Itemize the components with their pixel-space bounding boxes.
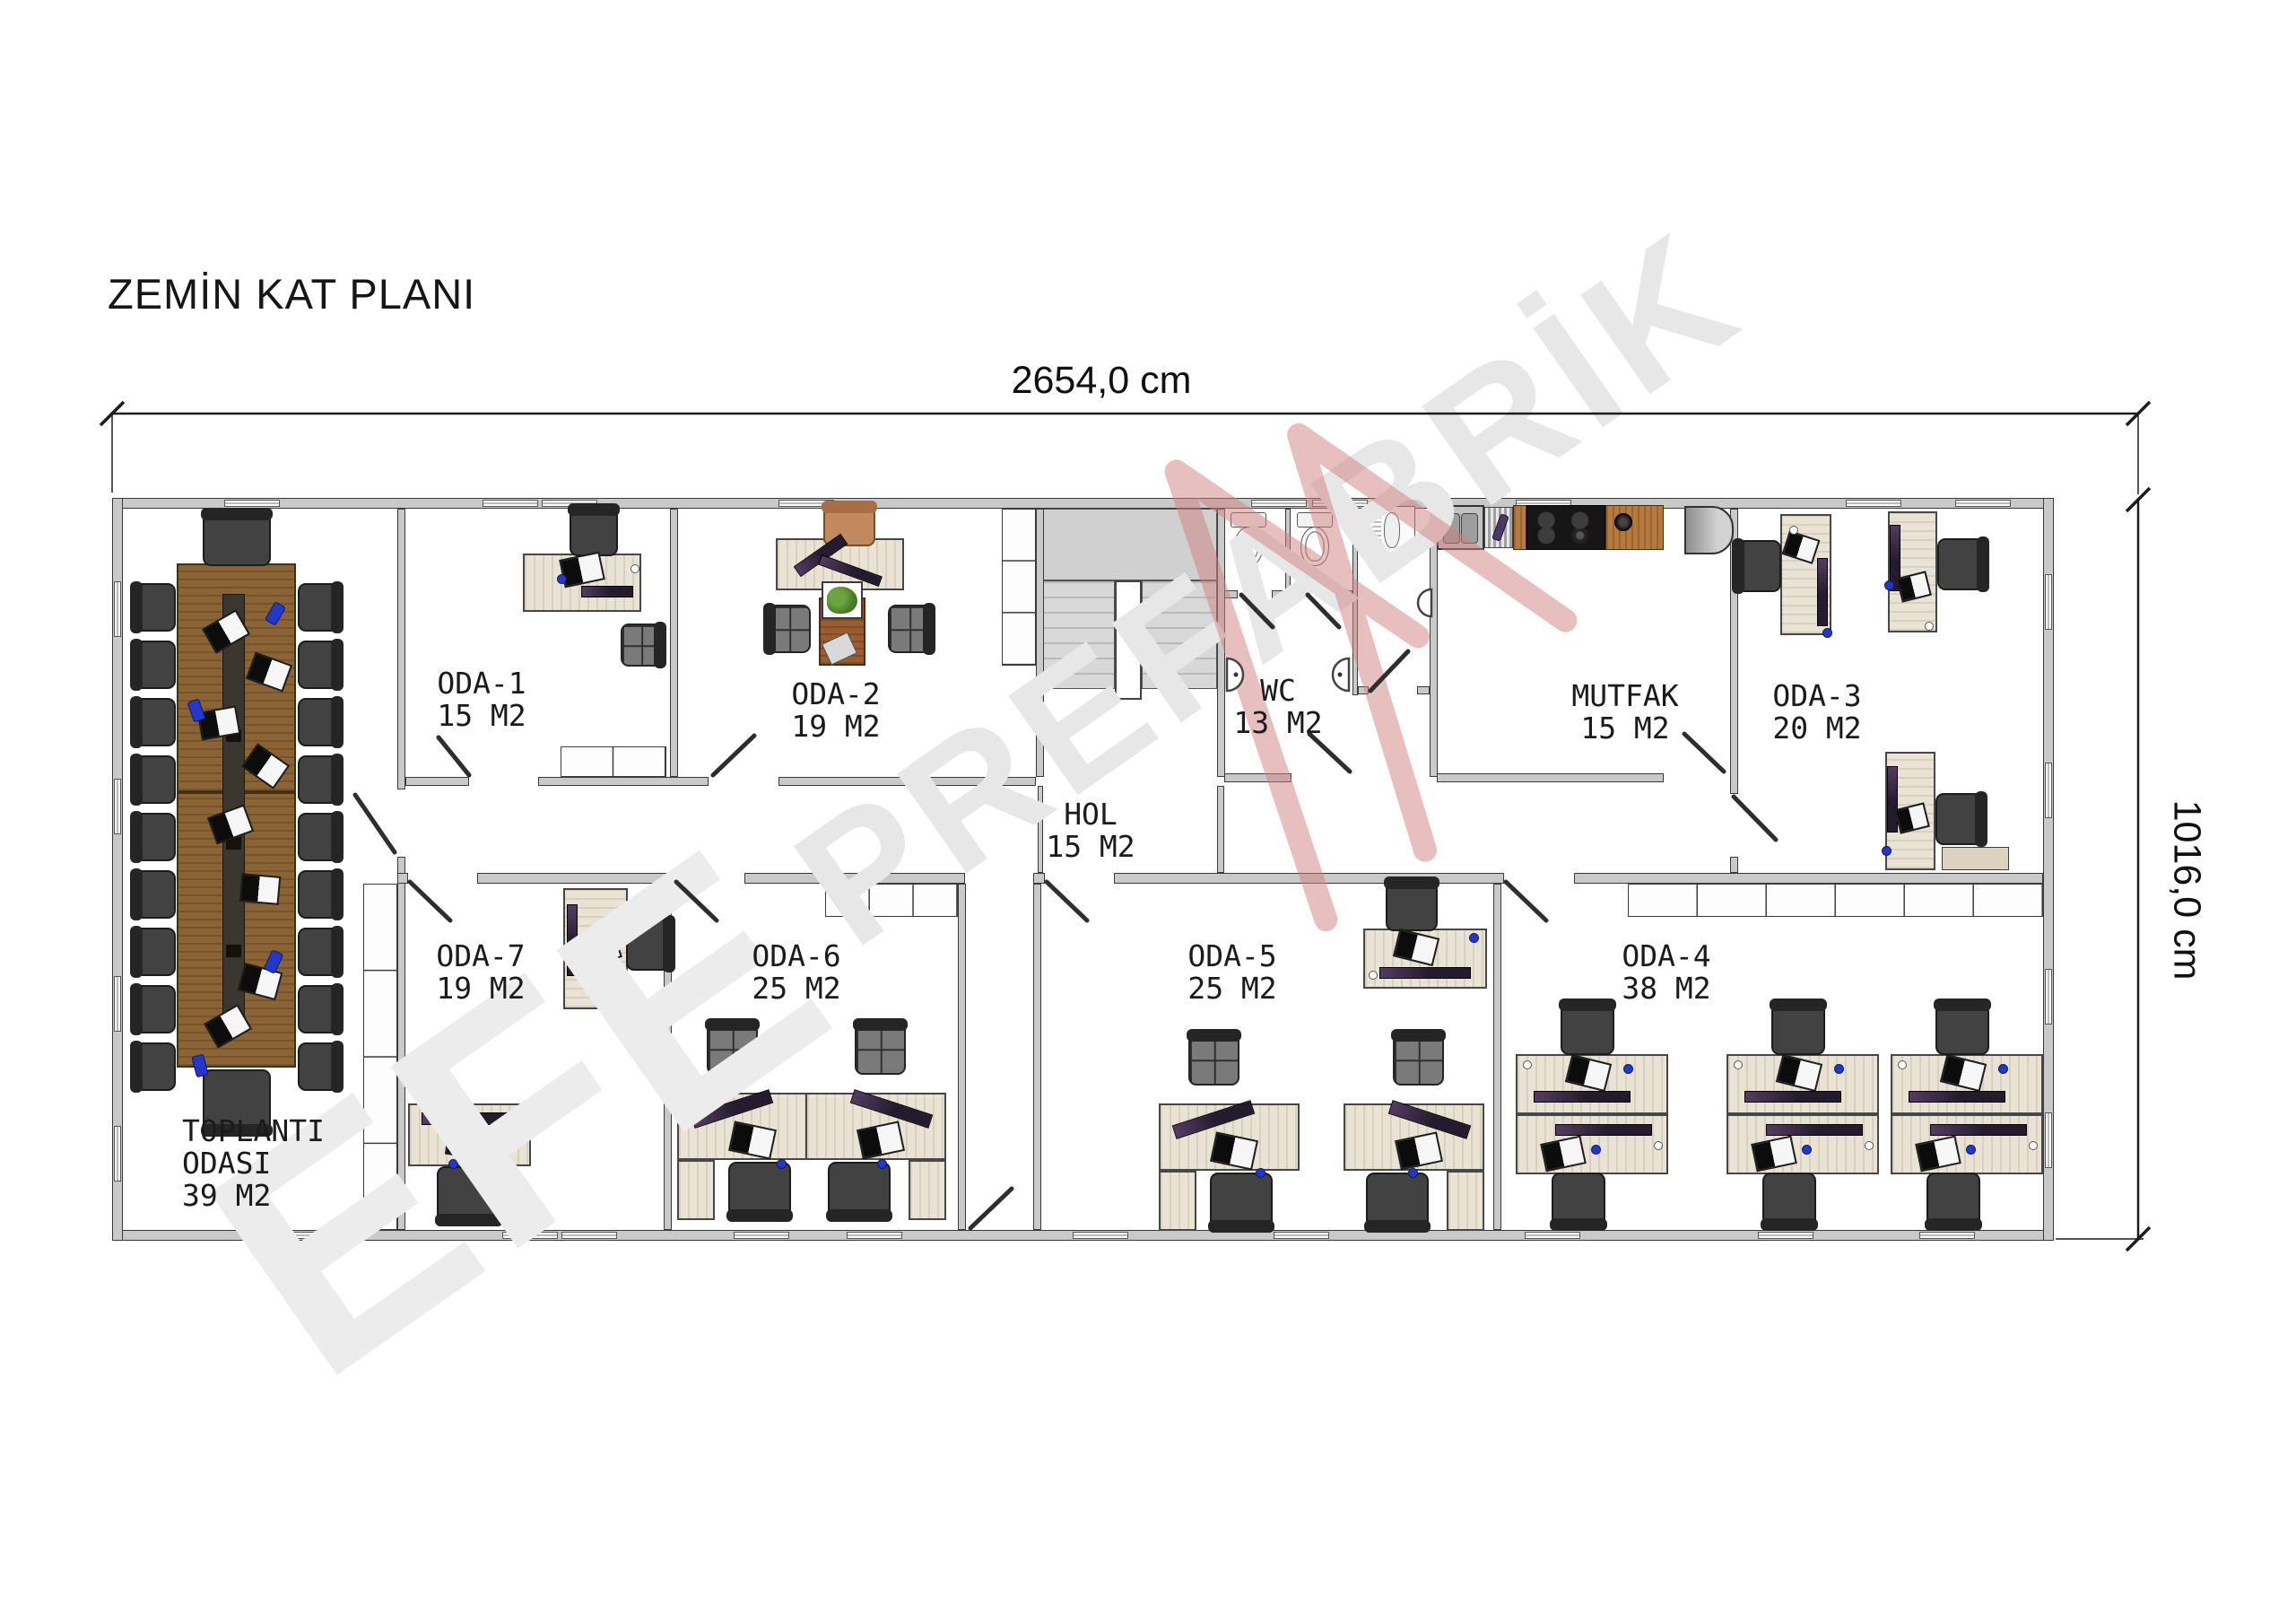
window [502, 1232, 558, 1239]
monitor [1379, 967, 1471, 979]
room-label-line: ODA-4 [1622, 940, 1710, 972]
desk-grommet [1865, 1141, 1874, 1150]
phone [1256, 1168, 1265, 1178]
page-title: ZEMİN KAT PLANI [108, 269, 475, 318]
wall-segment [1224, 590, 1238, 598]
cabinet-oda4-upper [1628, 884, 2043, 917]
room-label-line: ODA-3 [1772, 680, 1861, 712]
dimension-line-right [2056, 488, 2150, 1251]
monitor [1909, 1091, 2005, 1103]
refrigerator [1684, 506, 1734, 554]
task-chair [1366, 1173, 1429, 1228]
phone [1623, 1064, 1633, 1074]
window [1251, 500, 1307, 507]
task-chair [828, 1162, 891, 1217]
cabinet-oda6-upper [825, 884, 958, 917]
wall-segment [1038, 786, 1043, 873]
phone [1591, 1145, 1601, 1155]
guest-chair-oda1 [621, 624, 662, 667]
room-label-oda7: ODA-719 M2 [436, 940, 525, 1005]
window [1919, 1232, 1975, 1239]
wall-segment [744, 873, 965, 884]
room-label-line: MUTFAK [1571, 680, 1678, 712]
office-chair-oda4 [1771, 1003, 1825, 1055]
meeting-chair [298, 870, 339, 919]
stair-flight-right [1142, 580, 1217, 689]
monitor [1766, 1124, 1863, 1136]
window [847, 1232, 902, 1239]
door-leaf [1506, 882, 1546, 920]
meeting-chair [135, 985, 176, 1033]
wall-segment [477, 873, 674, 884]
window [1846, 500, 1901, 507]
window [1525, 1232, 1580, 1239]
wall-segment [1033, 873, 1045, 884]
wall-segment [397, 509, 405, 789]
wall-segment [405, 777, 469, 786]
monitor [581, 586, 633, 597]
door-leaf [1241, 595, 1273, 627]
room-label-oda4: ODA-438 M2 [1622, 940, 1710, 1005]
meeting-chair [298, 813, 339, 861]
wall-segment [958, 884, 966, 1230]
door-leaf [410, 882, 450, 920]
room-label-line: 15 M2 [437, 700, 526, 732]
window [224, 500, 280, 507]
desk-grommet [1523, 1060, 1532, 1069]
room-label-line: ODA-7 [436, 940, 525, 972]
workstation-return [1447, 1171, 1484, 1231]
window [114, 581, 121, 637]
room-label-line: ODA-1 [437, 667, 526, 700]
phone [557, 574, 567, 584]
desk-grommet [631, 564, 639, 573]
meeting-chair [135, 813, 176, 861]
phone [1469, 933, 1479, 943]
kitchen-counter [1513, 505, 1526, 550]
room-label-line: TOPLANTI [182, 1115, 325, 1147]
desk-grommet [1898, 1060, 1907, 1069]
wall-segment [112, 498, 2054, 509]
cabinet-toplanti [363, 884, 397, 1230]
watermark-prefabrik: PREFABRİK [761, 190, 1775, 985]
room-label-mutfak: MUTFAK15 M2 [1571, 680, 1678, 745]
wall-segment [1338, 590, 1352, 598]
cooking-pot [1614, 513, 1632, 531]
room-label-line: 25 M2 [1187, 972, 1276, 1005]
door-leaf [1734, 797, 1776, 840]
wall-segment [1574, 873, 2043, 884]
door-leaf [676, 882, 717, 920]
meeting-chair [135, 755, 176, 804]
dimension-height-label: 1016,0 cm [2165, 800, 2209, 981]
meeting-chair-head [203, 512, 271, 566]
wall-segment [397, 857, 405, 1230]
meeting-chair [135, 583, 176, 632]
stair-flight-left [1043, 580, 1115, 689]
wall-segment [1493, 884, 1501, 1230]
meeting-chair [135, 698, 176, 746]
window [1955, 500, 2011, 507]
wall-segment [1417, 686, 1430, 694]
dimension-width-label: 2654,0 cm [1012, 359, 1192, 403]
window [483, 500, 538, 507]
wall-segment [1217, 786, 1224, 873]
monitor [1887, 766, 1898, 833]
window [2045, 763, 2052, 818]
meeting-chair [298, 583, 339, 632]
wall-segment [1352, 509, 1358, 695]
window [1312, 500, 1368, 507]
kitchen-stove [1526, 505, 1605, 550]
meeting-chair [135, 641, 176, 689]
phone [621, 985, 631, 995]
phone [1882, 846, 1892, 856]
monitor [1817, 558, 1828, 626]
wall-segment [1730, 857, 1738, 873]
phone [1884, 580, 1894, 590]
guest-chair [707, 1023, 758, 1075]
task-chair [1210, 1173, 1273, 1228]
door-leaf [439, 737, 469, 775]
wall-segment [1291, 590, 1304, 598]
meeting-chair [298, 928, 339, 976]
window [114, 1126, 121, 1182]
phone [1998, 1064, 2008, 1074]
window [2045, 969, 2052, 1025]
window [1274, 1232, 1329, 1239]
dimension-line-top [100, 402, 2150, 494]
room-label-oda1: ODA-115 M2 [437, 667, 526, 732]
kitchen-counter [1605, 505, 1664, 550]
window [114, 779, 121, 834]
desk-grommet [1734, 1060, 1743, 1069]
door-leaf [1684, 734, 1724, 772]
window [1758, 1232, 1813, 1239]
cabinet-oda3-low [1942, 847, 2009, 870]
wall-segment [397, 873, 408, 884]
office-chair-oda3 [1736, 540, 1781, 592]
wall-segment [1036, 509, 1044, 777]
room-label-toplanti: TOPLANTIODASI39 M2 [182, 1115, 325, 1212]
room-label-line: 25 M2 [752, 972, 840, 1005]
door-leaf [1370, 651, 1408, 691]
wall-segment [1224, 773, 1291, 782]
door-leaf [713, 736, 754, 775]
room-label-line: ODASI [182, 1147, 325, 1180]
phone [1966, 1145, 1976, 1155]
meeting-chair [298, 641, 339, 689]
squat-toilet [1369, 506, 1415, 554]
window [2045, 574, 2052, 630]
office-chair-oda4 [1926, 1173, 1980, 1226]
meeting-chair [135, 928, 176, 976]
room-label-line: 38 M2 [1622, 972, 1710, 1005]
guest-chair [1188, 1033, 1239, 1086]
toilet [1297, 512, 1333, 566]
stair-landing [1043, 509, 1217, 580]
window [269, 1232, 325, 1239]
monitor [1555, 1124, 1652, 1136]
room-label-line: 19 M2 [436, 972, 525, 1005]
monitor [1534, 1091, 1631, 1103]
guest-chair [1393, 1033, 1444, 1086]
workstation-return [1159, 1171, 1196, 1231]
door-leaf [1047, 882, 1087, 920]
kitchen-sink [1437, 505, 1484, 550]
office-chair-oda4 [1935, 1003, 1989, 1055]
room-label-line: 15 M2 [1571, 712, 1678, 745]
door-leaf [1308, 595, 1339, 627]
sink-icon [1333, 658, 1349, 691]
meeting-chair [135, 870, 176, 919]
cabinet-oda1 [561, 746, 666, 777]
wall-segment [538, 777, 709, 786]
desk-grommet [1925, 622, 1934, 631]
task-chair [728, 1162, 791, 1217]
guest-chair [855, 1023, 906, 1075]
room-label-line: ODA-5 [1187, 940, 1276, 972]
office-chair-oda4 [1552, 1173, 1605, 1226]
room-label-line: 19 M2 [791, 711, 880, 743]
toilet [1231, 512, 1266, 566]
desk-grommet [1789, 526, 1798, 535]
room-label-line: WC [1233, 675, 1322, 707]
meeting-chair [298, 698, 339, 746]
door-leaf [355, 795, 395, 852]
window [114, 976, 121, 1032]
monitor [1930, 1124, 2027, 1136]
phone [1834, 1064, 1844, 1074]
office-chair-oda1 [570, 508, 618, 556]
wall-segment [1272, 590, 1291, 598]
office-chair-oda3 [1937, 538, 1985, 590]
office-chair-oda7 [437, 1166, 501, 1222]
desk-grommet [2029, 1141, 2038, 1150]
room-label-line: 13 M2 [1233, 707, 1322, 739]
room-label-hol: HOL15 M2 [1046, 798, 1135, 863]
wall-segment [1358, 686, 1369, 694]
room-label-oda3: ODA-320 M2 [1772, 680, 1861, 745]
door-leaf [970, 1189, 1012, 1228]
plant [822, 581, 863, 619]
floor-plan-canvas: ZEMİN KAT PLANI 2654,0 cm 1016,0 cm EFE … [0, 0, 2296, 1622]
phone [1408, 1168, 1418, 1178]
office-chair-oda7 [626, 917, 671, 971]
room-label-oda6: ODA-625 M2 [752, 940, 840, 1005]
window [734, 1232, 789, 1239]
phone [877, 1159, 887, 1169]
meeting-chair [135, 1042, 176, 1091]
office-chair-oda5 [1386, 881, 1438, 931]
window [561, 1232, 617, 1239]
room-label-wc: WC13 M2 [1233, 675, 1322, 739]
phone [1822, 628, 1832, 638]
armchair-oda2 [768, 605, 811, 653]
meeting-chair [298, 755, 339, 804]
desk-grommet [1369, 971, 1378, 980]
phone [777, 1159, 787, 1169]
room-label-oda2: ODA-219 M2 [791, 678, 880, 743]
wall-segment [778, 777, 1036, 786]
desk-grommet [1654, 1141, 1663, 1150]
window [1073, 1232, 1128, 1239]
wall-segment [1217, 509, 1225, 777]
wall-segment [1437, 773, 1664, 782]
office-chair-oda4 [1762, 1173, 1816, 1226]
wall-segment [1033, 884, 1041, 1230]
meeting-chair [298, 1042, 339, 1091]
monitor [422, 1112, 511, 1125]
meeting-chair [298, 985, 339, 1033]
stair-divider-wall [1115, 580, 1142, 700]
laptop [445, 1124, 491, 1160]
armchair-oda2 [888, 605, 931, 653]
monitor [1744, 1091, 1841, 1103]
cabinet-oda2 [1002, 509, 1036, 666]
phone [448, 1159, 458, 1169]
office-chair-oda4 [1561, 1003, 1614, 1055]
monitor [567, 904, 578, 976]
room-label-line: ODA-2 [791, 678, 880, 711]
laptop [239, 873, 282, 905]
wall-segment [1114, 873, 1504, 884]
room-label-oda5: ODA-525 M2 [1187, 940, 1276, 1005]
room-label-line: 15 M2 [1046, 831, 1135, 863]
room-label-line: HOL [1046, 798, 1135, 831]
window [2045, 1112, 2052, 1168]
room-label-line: ODA-6 [752, 940, 840, 972]
workstation-return [909, 1160, 946, 1220]
wall-segment [1285, 509, 1291, 590]
phone [1802, 1145, 1812, 1155]
room-label-line: 20 M2 [1772, 712, 1861, 745]
workstation-return [677, 1160, 715, 1220]
office-chair-oda3 [1935, 793, 1983, 845]
room-label-line: 39 M2 [182, 1180, 325, 1212]
wall-segment [670, 509, 678, 777]
